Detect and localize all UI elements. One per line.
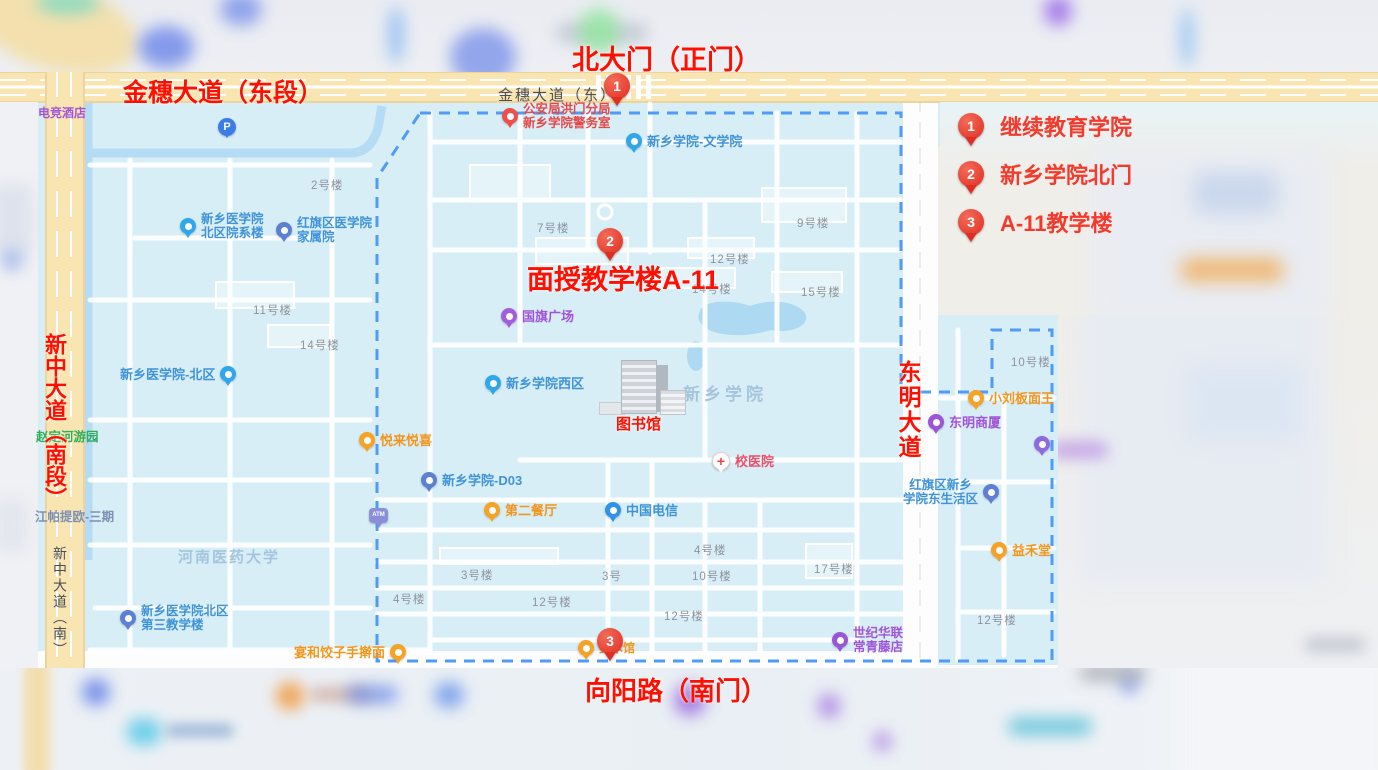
school-icon — [626, 133, 642, 149]
poi-yanhe-dumplings[interactable]: 宴和饺子手擀面 — [294, 644, 406, 660]
poi-yihetang[interactable]: 益禾堂 — [991, 542, 1051, 558]
poi-east-living-area[interactable]: 红旗区新乡 学院东生活区 — [903, 478, 999, 506]
building-label: 12号楼 — [664, 608, 704, 624]
legend-item-1: 1 继续教育学院 — [958, 102, 1132, 150]
poi-jiangpatiou[interactable]: 江帕提欧-三期 — [35, 510, 114, 525]
shop-icon — [928, 414, 944, 430]
legend-label-1: 继续教育学院 — [1000, 110, 1132, 142]
building-label: 11号楼 — [253, 302, 292, 318]
school-icon — [180, 218, 196, 234]
poi-medical-north-campus[interactable]: 新乡医学院-北区 — [120, 366, 236, 382]
area-label-xinxiang-univ: 新乡学院 — [683, 380, 767, 405]
road-label-xinzhong-south: 新中大道（南） — [50, 546, 70, 658]
building-icon — [983, 484, 999, 500]
restaurant-icon — [484, 502, 500, 518]
poi-yuanxilou[interactable]: 新乡医学院 北区院系楼 — [180, 212, 264, 240]
poi-parking[interactable]: P — [218, 118, 236, 136]
annotation-xiangyang-road: 向阳路（南门） — [585, 671, 767, 708]
area-label-henan-medical: 河南医药大学 — [178, 546, 280, 567]
poi-yuelaiyuexi[interactable]: 悦来悦喜 — [359, 432, 432, 448]
poi-esports-hotel[interactable]: 电竞酒店 — [38, 106, 86, 121]
drink-icon — [991, 542, 1007, 558]
school-icon — [485, 375, 501, 391]
building-label: 3号楼 — [461, 567, 493, 583]
poi-wenxueyuan[interactable]: 新乡学院-文学院 — [626, 133, 742, 149]
building-label: 12号楼 — [977, 612, 1017, 628]
poi-hotel[interactable] — [1034, 436, 1050, 452]
annotation-jinsui-avenue: 金穗大道（东段） — [123, 73, 323, 109]
blurred-map-edge-left — [0, 102, 38, 668]
campus-map-canvas[interactable]: 河南医药大学 新乡学院 金穗大道（东） 新中大道（南） 电竞酒店 P 公安局洪门… — [0, 0, 1378, 770]
building-label: 14号楼 — [300, 337, 340, 353]
legend-pin-2: 2 — [958, 161, 984, 187]
map-marker-3[interactable]: 3 — [597, 628, 623, 654]
building-icon — [120, 610, 136, 626]
building-label: 15号楼 — [801, 284, 841, 300]
poi-d03[interactable]: 新乡学院-D03 — [421, 472, 522, 488]
annotation-xinzhong-avenue: 新中大道（南段） — [38, 333, 70, 509]
restaurant-icon — [968, 390, 984, 406]
legend-pin-3: 3 — [958, 209, 984, 235]
parking-icon: P — [218, 118, 236, 136]
poi-china-telecom[interactable]: 中国电信 — [605, 502, 678, 518]
building-label: 3号 — [602, 568, 622, 584]
poi-jiashuyuan[interactable]: 红旗区医学院 家属院 — [276, 216, 372, 244]
legend-pin-1: 1 — [958, 113, 984, 139]
legend-label-3: A-11教学楼 — [1000, 206, 1112, 238]
poi-shiji-hualian[interactable]: 世纪华联 常青藤店 — [832, 626, 903, 654]
restaurant-icon — [359, 432, 375, 448]
building-icon — [276, 222, 292, 238]
poi-xiaoliu-noodles[interactable]: 小刘板面王 — [968, 390, 1054, 406]
annotation-teaching-building-a11: 面授教学楼A-11 — [527, 258, 719, 297]
poi-flag-square[interactable]: 国旗广场 — [501, 308, 574, 324]
building-label: 4号楼 — [694, 542, 726, 558]
annotation-dongming-avenue: 东明大道 — [891, 360, 925, 460]
building-icon — [421, 472, 437, 488]
museum-icon — [578, 640, 594, 656]
school-icon — [220, 366, 236, 382]
annotation-north-gate: 北大门（正门） — [572, 38, 761, 77]
building-label: 10号楼 — [1011, 354, 1051, 370]
poi-west-campus[interactable]: 新乡学院西区 — [485, 375, 584, 391]
restaurant-icon — [390, 644, 406, 660]
library-annotation: 图书馆 — [616, 413, 661, 434]
poi-dongming-mall[interactable]: 东明商厦 — [928, 414, 1001, 430]
hospital-cross-icon — [712, 452, 730, 470]
poi-second-canteen[interactable]: 第二餐厅 — [484, 502, 557, 518]
building-label: 10号楼 — [692, 568, 732, 584]
map-marker-2[interactable]: 2 — [597, 228, 623, 254]
building-label: 9号楼 — [797, 215, 829, 231]
police-pin-icon — [502, 108, 518, 124]
poi-third-teaching-building[interactable]: 新乡医学院北区 第三教学楼 — [120, 604, 229, 632]
legend-label-2: 新乡学院北门 — [1000, 158, 1132, 190]
building-label: 4号楼 — [393, 591, 425, 607]
library-building-image — [597, 360, 689, 418]
poi-atm[interactable]: ATM — [369, 508, 388, 523]
flag-icon — [501, 308, 517, 324]
legend: 1 继续教育学院 2 新乡学院北门 3 A-11教学楼 — [958, 102, 1132, 246]
legend-item-2: 2 新乡学院北门 — [958, 150, 1132, 198]
legend-item-3: 3 A-11教学楼 — [958, 198, 1132, 246]
atm-icon: ATM — [369, 508, 388, 523]
shop-icon — [832, 632, 848, 648]
building-label: 12号楼 — [532, 594, 572, 610]
phone-icon — [605, 502, 621, 518]
poi-police-station[interactable]: 公安局洪门分局 新乡学院警务室 — [502, 102, 611, 130]
hotel-icon — [1034, 436, 1050, 452]
building-label: 2号楼 — [311, 177, 343, 193]
poi-campus-hospital[interactable]: 校医院 — [712, 452, 774, 470]
building-label: 7号楼 — [537, 220, 569, 236]
building-label: 17号楼 — [814, 561, 854, 577]
